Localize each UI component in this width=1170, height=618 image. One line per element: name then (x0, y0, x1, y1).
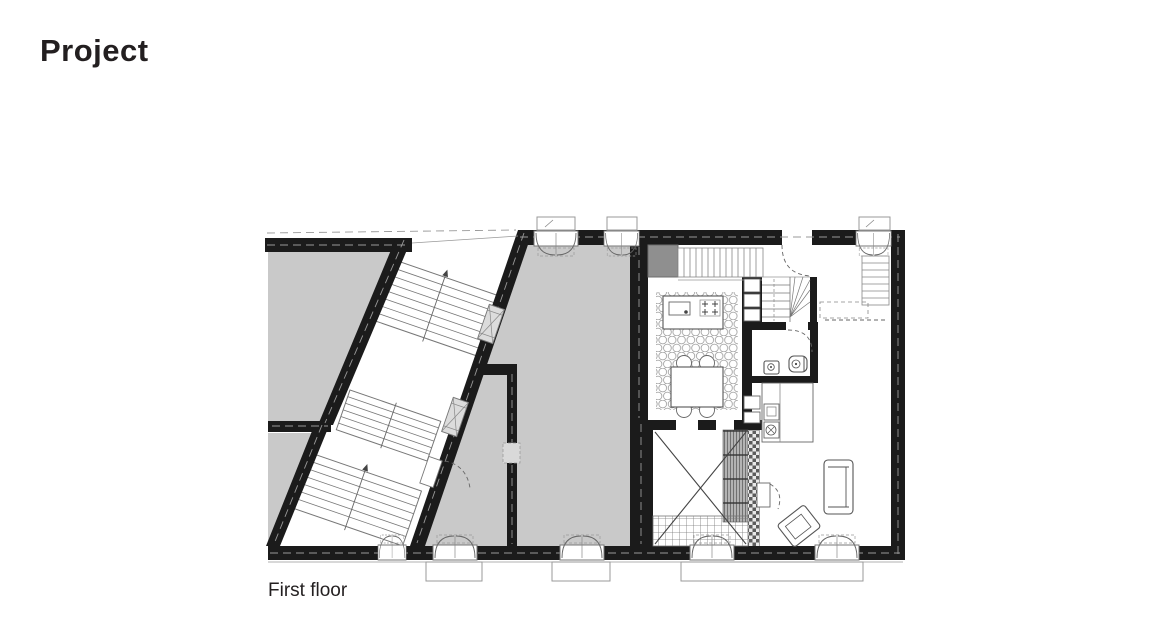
dining-table (671, 367, 723, 407)
kitchen-island (663, 296, 723, 329)
shaft (648, 245, 678, 277)
first-floor-plan (0, 0, 1170, 618)
entry-door-gap (782, 230, 812, 245)
armchair (777, 505, 821, 548)
void-room-left-wall (630, 422, 653, 546)
winder-door-gap (786, 322, 808, 330)
bath-left-wall (742, 330, 752, 383)
door-swing (770, 484, 780, 509)
stair-flight-middle (335, 387, 441, 464)
void-hatch-band (723, 430, 748, 522)
entry-stair (678, 248, 763, 280)
document-page: Project (0, 0, 1170, 618)
kitchen-counter (762, 383, 813, 442)
void-window-gap-1 (676, 420, 698, 430)
bath-bottom-wall (742, 376, 818, 383)
grid-band (653, 516, 748, 546)
interior-wall-stub (474, 364, 517, 375)
entry-door-swing (782, 245, 810, 276)
door-leaf (757, 483, 770, 507)
bathroom (764, 356, 807, 374)
winder-stair (762, 277, 810, 322)
plan-caption: First floor (268, 580, 347, 602)
dashed-furniture-outline (820, 302, 868, 318)
bath-right-wall (810, 330, 818, 383)
void-window-gap-2 (716, 420, 734, 430)
side-stair (862, 256, 889, 305)
middle-room-door (503, 443, 520, 463)
void-room (653, 430, 760, 546)
sofa (824, 460, 853, 514)
bath-door-swing (788, 330, 812, 352)
